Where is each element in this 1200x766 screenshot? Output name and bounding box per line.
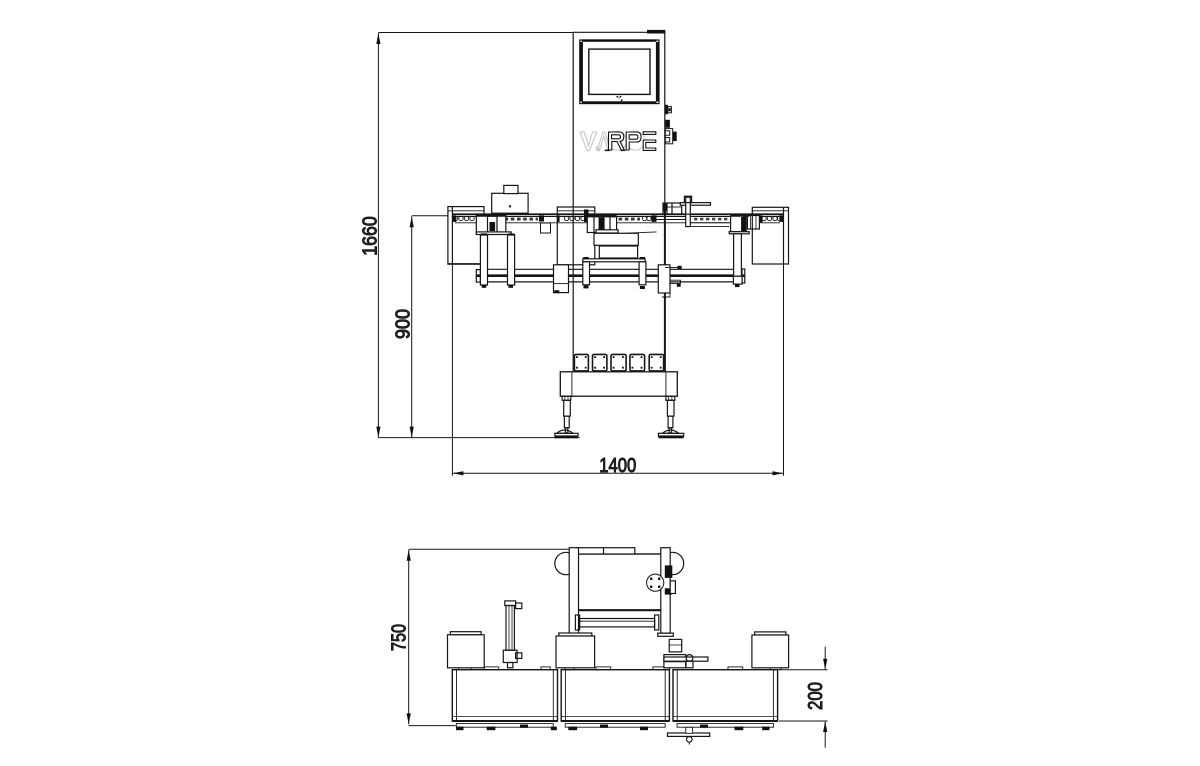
svg-text:1660: 1660 (359, 216, 382, 256)
svg-text:1400: 1400 (599, 454, 636, 477)
svg-text:900: 900 (392, 309, 415, 339)
svg-text:200: 200 (804, 682, 827, 710)
svg-text:750: 750 (389, 624, 411, 651)
